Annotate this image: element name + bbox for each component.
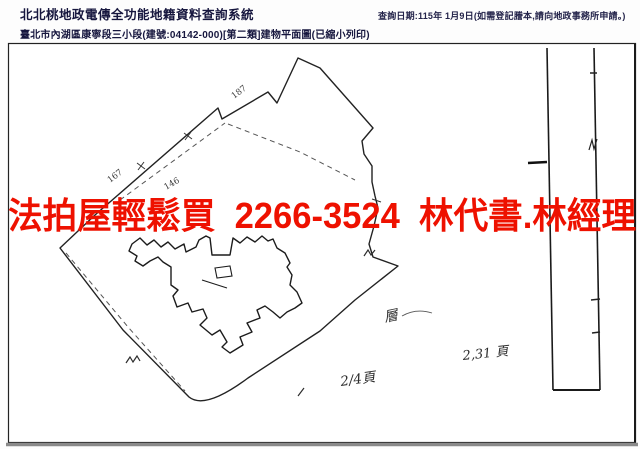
strip-connector-dash — [528, 162, 547, 163]
floor-plan-drawing: 187 167 146 層 2,31 頁 2/4頁 — [0, 0, 640, 449]
plan-frame-border — [9, 44, 636, 443]
